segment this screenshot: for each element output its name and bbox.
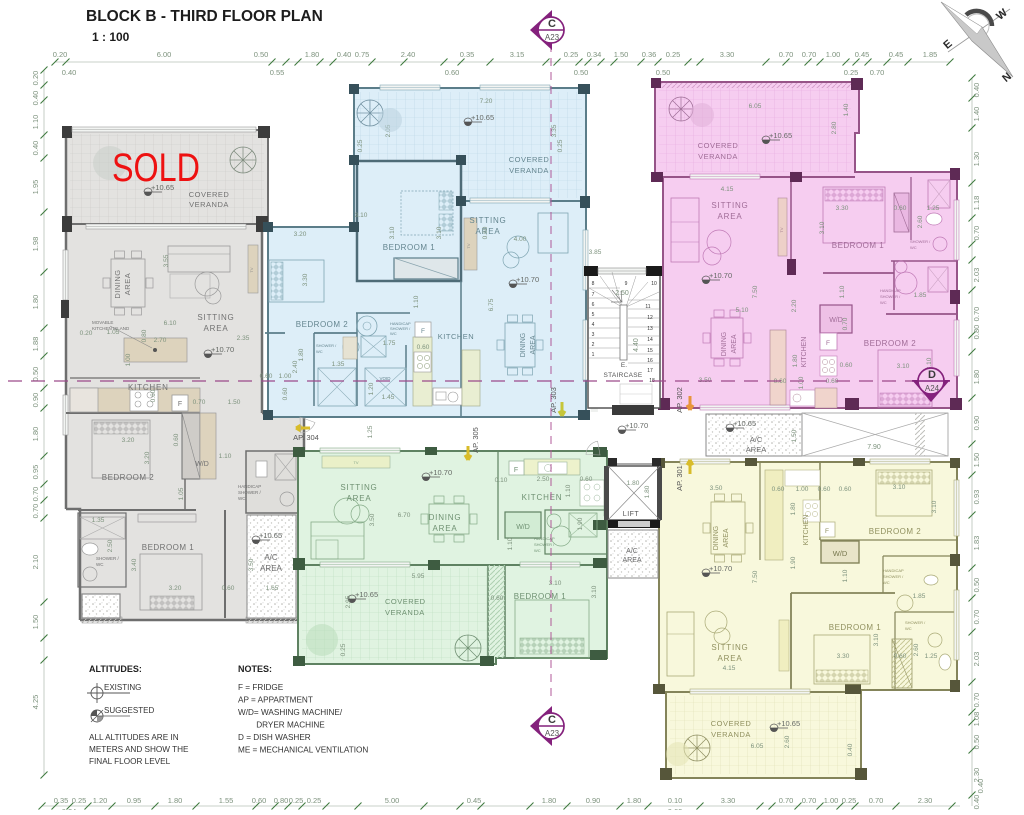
svg-text:0.70: 0.70 <box>802 50 817 59</box>
svg-text:6: 6 <box>592 302 595 308</box>
svg-text:0.40: 0.40 <box>337 50 352 59</box>
svg-text:2.10: 2.10 <box>31 555 40 570</box>
svg-text:W/D: W/D <box>195 461 209 468</box>
svg-text:1.00: 1.00 <box>826 50 841 59</box>
svg-text:SHOWER /: SHOWER / <box>316 343 337 348</box>
svg-text:8: 8 <box>592 281 595 287</box>
svg-text:F: F <box>826 340 830 347</box>
svg-text:1.85: 1.85 <box>923 50 938 59</box>
svg-text:KITCHEN: KITCHEN <box>438 332 474 341</box>
svg-text:AREA: AREA <box>718 212 743 221</box>
svg-text:SITTING: SITTING <box>711 643 748 652</box>
svg-text:E.: E. <box>621 362 627 369</box>
svg-text:0.60: 0.60 <box>894 205 907 212</box>
svg-text:SHOWER /: SHOWER / <box>96 556 120 561</box>
svg-text:0.25: 0.25 <box>307 796 322 805</box>
svg-text:3.30: 3.30 <box>721 796 736 805</box>
svg-text:3.40: 3.40 <box>131 558 138 571</box>
svg-text:5.10: 5.10 <box>736 307 749 314</box>
svg-text:1.10: 1.10 <box>31 115 40 130</box>
svg-text:1.05: 1.05 <box>178 487 185 500</box>
svg-text:A/C: A/C <box>264 553 278 562</box>
svg-text:3: 3 <box>592 332 595 338</box>
svg-text:0.25: 0.25 <box>842 796 857 805</box>
svg-text:W/D= WASHING MACHINE/: W/D= WASHING MACHINE/ <box>238 708 343 717</box>
svg-text:17: 17 <box>647 368 653 374</box>
svg-text:7: 7 <box>592 292 595 298</box>
svg-text:3.20: 3.20 <box>294 231 307 238</box>
svg-text:0.93: 0.93 <box>972 490 981 505</box>
svg-text:0.36: 0.36 <box>642 50 657 59</box>
svg-text:1.80: 1.80 <box>792 354 799 367</box>
svg-text:1.80: 1.80 <box>298 348 305 361</box>
svg-text:2.35: 2.35 <box>237 335 250 342</box>
svg-text:3.30: 3.30 <box>837 653 850 660</box>
svg-text:WC: WC <box>880 300 887 305</box>
svg-text:0.35: 0.35 <box>54 796 69 805</box>
svg-text:AP. 302: AP. 302 <box>675 387 684 413</box>
svg-text:1.88: 1.88 <box>31 337 40 352</box>
svg-text:AP = APPARTMENT: AP = APPARTMENT <box>238 696 313 705</box>
svg-text:0.10: 0.10 <box>495 477 508 484</box>
svg-text:KITCHEN: KITCHEN <box>522 493 563 502</box>
svg-text:SOLD: SOLD <box>112 146 200 190</box>
svg-text:0.34: 0.34 <box>587 50 602 59</box>
svg-text:1.85: 1.85 <box>914 292 927 299</box>
svg-text:1.25: 1.25 <box>925 653 938 660</box>
svg-text:DINING: DINING <box>713 526 720 551</box>
svg-text:4: 4 <box>592 322 595 328</box>
svg-text:F: F <box>825 528 829 535</box>
svg-text:0.60: 0.60 <box>894 653 907 660</box>
svg-text:1.80: 1.80 <box>31 427 40 442</box>
svg-text:0.90: 0.90 <box>586 796 601 805</box>
svg-text:SUGGESTED: SUGGESTED <box>104 706 154 715</box>
svg-text:SHOWER /: SHOWER / <box>910 239 931 244</box>
svg-text:0.25: 0.25 <box>557 139 564 152</box>
svg-text:0.25: 0.25 <box>340 643 347 656</box>
svg-text:COVERED: COVERED <box>385 597 426 606</box>
svg-text:3.20: 3.20 <box>144 451 151 464</box>
svg-text:COVERED: COVERED <box>698 141 739 150</box>
svg-text:0.40: 0.40 <box>976 779 985 794</box>
svg-text:6.00: 6.00 <box>157 50 172 59</box>
svg-text:A/C: A/C <box>626 548 638 555</box>
svg-text:2.50: 2.50 <box>537 476 550 483</box>
svg-text:A24: A24 <box>925 384 940 393</box>
svg-text:13: 13 <box>647 326 653 332</box>
svg-text:BLOCK B - THIRD FLOOR PLAN: BLOCK B - THIRD FLOOR PLAN <box>86 8 323 25</box>
svg-text:COVERED: COVERED <box>711 719 752 728</box>
svg-text:DINING: DINING <box>520 333 527 358</box>
svg-text:1.00: 1.00 <box>824 796 839 805</box>
svg-text:AREA: AREA <box>347 494 372 503</box>
svg-text:AREA: AREA <box>260 564 282 573</box>
svg-text:SHOWER /: SHOWER / <box>534 542 555 547</box>
svg-text:0.70: 0.70 <box>972 307 981 322</box>
svg-text:0.70: 0.70 <box>842 317 849 330</box>
svg-text:VERANDA: VERANDA <box>698 152 738 161</box>
svg-text:1 : 100: 1 : 100 <box>92 30 130 44</box>
svg-text:0.70: 0.70 <box>802 796 817 805</box>
svg-text:DINING: DINING <box>429 513 462 522</box>
svg-text:SITTING: SITTING <box>340 483 377 492</box>
svg-text:4.00: 4.00 <box>514 236 527 243</box>
svg-text:0.60: 0.60 <box>282 387 289 400</box>
svg-text:F = FRIDGE: F = FRIDGE <box>238 683 284 692</box>
svg-text:DRYER MACHINE: DRYER MACHINE <box>238 721 325 730</box>
svg-text:3.10: 3.10 <box>819 221 826 234</box>
svg-text:AREA: AREA <box>731 334 738 353</box>
svg-text:0.20: 0.20 <box>53 50 68 59</box>
svg-text:ALL ALTITUDES ARE IN: ALL ALTITUDES ARE IN <box>89 733 179 742</box>
svg-text:0.70: 0.70 <box>972 693 981 708</box>
svg-text:0.40: 0.40 <box>972 795 981 810</box>
svg-text:0.40: 0.40 <box>62 68 77 77</box>
svg-text:2.03: 2.03 <box>972 652 981 667</box>
svg-text:0.60: 0.60 <box>260 373 273 380</box>
svg-text:1.80: 1.80 <box>168 796 183 805</box>
svg-text:0.20: 0.20 <box>80 330 93 337</box>
svg-text:14: 14 <box>647 337 653 343</box>
svg-text:+10.70: +10.70 <box>625 421 648 430</box>
svg-text:0.60: 0.60 <box>222 585 235 592</box>
svg-text:0.45: 0.45 <box>467 796 482 805</box>
svg-text:+10.65: +10.65 <box>471 113 494 122</box>
svg-text:BEDROOM 2: BEDROOM 2 <box>869 527 922 536</box>
svg-text:1.10: 1.10 <box>413 295 420 308</box>
svg-text:0.40: 0.40 <box>31 141 40 156</box>
svg-text:LIFT: LIFT <box>623 511 640 518</box>
svg-text:AREA: AREA <box>530 335 537 354</box>
svg-text:0.60: 0.60 <box>491 595 504 602</box>
svg-text:15: 15 <box>647 348 653 354</box>
svg-text:1.25: 1.25 <box>367 425 374 438</box>
svg-text:0.70: 0.70 <box>31 504 40 519</box>
svg-text:BEDROOM 2: BEDROOM 2 <box>864 339 917 348</box>
svg-text:0.25: 0.25 <box>564 50 579 59</box>
svg-text:ME = MECHANICAL VENTILATION: ME = MECHANICAL VENTILATION <box>238 746 368 755</box>
svg-text:7.50: 7.50 <box>752 285 759 298</box>
svg-text:1.00: 1.00 <box>798 376 805 389</box>
svg-text:1.80: 1.80 <box>644 485 651 498</box>
svg-text:1.10: 1.10 <box>565 484 572 497</box>
svg-text:2.20: 2.20 <box>791 299 798 312</box>
svg-text:1.80: 1.80 <box>31 295 40 310</box>
svg-text:+10.65: +10.65 <box>733 419 756 428</box>
svg-text:WC: WC <box>883 580 890 585</box>
svg-text:1.18: 1.18 <box>972 196 981 211</box>
svg-text:ALTITUDES:: ALTITUDES: <box>89 664 142 674</box>
svg-text:0.50: 0.50 <box>31 367 40 382</box>
svg-text:1.50: 1.50 <box>31 615 40 630</box>
svg-text:1.95: 1.95 <box>31 180 40 195</box>
svg-text:2.30: 2.30 <box>918 796 933 805</box>
svg-text:1.98: 1.98 <box>31 237 40 252</box>
svg-text:AREA: AREA <box>123 273 132 295</box>
svg-text:2.40: 2.40 <box>292 360 299 373</box>
svg-text:1.00: 1.00 <box>279 373 292 380</box>
svg-text:1.00: 1.00 <box>796 486 809 493</box>
svg-text:2.50: 2.50 <box>615 290 629 297</box>
svg-text:AP. 304: AP. 304 <box>293 433 319 442</box>
svg-text:11: 11 <box>645 304 650 310</box>
svg-text:0.10: 0.10 <box>668 796 683 805</box>
svg-text:1.80: 1.80 <box>627 796 642 805</box>
svg-text:AREA: AREA <box>204 324 229 333</box>
svg-text:AREA: AREA <box>723 528 730 547</box>
svg-text:AP. 301: AP. 301 <box>675 465 684 491</box>
svg-text:1.30: 1.30 <box>972 152 981 167</box>
svg-text:DINING: DINING <box>721 332 728 357</box>
svg-text:1: 1 <box>592 352 595 358</box>
svg-text:1.90: 1.90 <box>577 517 584 530</box>
svg-text:3.15: 3.15 <box>510 50 525 59</box>
svg-text:1.10: 1.10 <box>839 285 846 298</box>
svg-text:6.75: 6.75 <box>488 298 495 311</box>
svg-text:7.90: 7.90 <box>867 444 881 451</box>
svg-text:KITCHEN: KITCHEN <box>801 337 808 368</box>
svg-text:C: C <box>548 714 556 726</box>
svg-text:4.25: 4.25 <box>31 695 40 710</box>
svg-text:WC: WC <box>96 562 104 567</box>
svg-text:KITCHEN: KITCHEN <box>803 515 810 546</box>
svg-text:W/D: W/D <box>516 524 530 531</box>
svg-text:SITTING: SITTING <box>197 313 234 322</box>
svg-text:TV: TV <box>249 267 254 272</box>
svg-text:3.20: 3.20 <box>169 585 182 592</box>
svg-text:0.20: 0.20 <box>31 71 40 86</box>
svg-text:3.10: 3.10 <box>873 633 880 646</box>
svg-text:0.55: 0.55 <box>270 68 285 77</box>
svg-text:SHOWER /: SHOWER / <box>880 294 901 299</box>
svg-text:0.95: 0.95 <box>31 465 40 480</box>
svg-text:0.70: 0.70 <box>870 68 885 77</box>
svg-text:16: 16 <box>647 358 653 364</box>
svg-text:+10.65: +10.65 <box>355 590 378 599</box>
svg-text:3.10: 3.10 <box>355 212 368 219</box>
svg-text:1.00: 1.00 <box>125 353 132 366</box>
svg-text:KITCHEN: KITCHEN <box>128 383 169 392</box>
svg-text:4.15: 4.15 <box>723 665 736 672</box>
svg-text:1.25: 1.25 <box>927 205 940 212</box>
svg-text:0.70: 0.70 <box>869 796 884 805</box>
svg-text:0.25: 0.25 <box>357 139 364 152</box>
svg-text:5.00: 5.00 <box>385 796 400 805</box>
svg-text:COVERED: COVERED <box>509 155 550 164</box>
svg-text:3.55: 3.55 <box>163 254 170 267</box>
svg-text:1.50: 1.50 <box>972 453 981 468</box>
svg-text:A23: A23 <box>545 729 560 738</box>
svg-text:0.25: 0.25 <box>289 796 304 805</box>
svg-text:1.75: 1.75 <box>383 340 396 347</box>
svg-text:6.70: 6.70 <box>398 512 411 519</box>
svg-text:3.10: 3.10 <box>931 500 938 513</box>
svg-text:1.40: 1.40 <box>972 107 981 122</box>
svg-text:BEDROOM 1: BEDROOM 1 <box>832 241 885 250</box>
svg-text:2.95: 2.95 <box>345 595 352 608</box>
svg-text:7.20: 7.20 <box>480 98 493 105</box>
svg-text:1.85: 1.85 <box>913 593 926 600</box>
svg-text:12: 12 <box>647 315 653 321</box>
svg-text:HANDICAP: HANDICAP <box>883 568 904 573</box>
svg-text:D: D <box>928 369 936 381</box>
svg-text:VERANDA: VERANDA <box>189 200 229 209</box>
svg-text:0.25: 0.25 <box>72 796 87 805</box>
svg-text:0.60: 0.60 <box>417 344 430 351</box>
svg-text:W/D: W/D <box>829 317 843 324</box>
svg-text:3.30: 3.30 <box>302 273 309 286</box>
svg-text:0.70: 0.70 <box>779 50 794 59</box>
svg-text:+10.70: +10.70 <box>709 271 732 280</box>
svg-text:D = DISH WASHER: D = DISH WASHER <box>238 733 311 742</box>
svg-text:1.50: 1.50 <box>614 50 629 59</box>
svg-text:5: 5 <box>592 312 595 318</box>
svg-text:COVERED: COVERED <box>189 190 230 199</box>
svg-text:AP. 305: AP. 305 <box>471 427 480 453</box>
svg-text:0.50: 0.50 <box>972 735 981 750</box>
svg-text:0.70: 0.70 <box>972 610 981 625</box>
svg-text:1.10: 1.10 <box>219 453 232 460</box>
svg-text:1.80: 1.80 <box>305 50 320 59</box>
svg-text:0.80: 0.80 <box>972 325 981 340</box>
svg-text:TV: TV <box>779 227 784 232</box>
svg-text:3.10: 3.10 <box>897 363 910 370</box>
svg-text:BEDROOM 2: BEDROOM 2 <box>102 473 155 482</box>
svg-text:AREA: AREA <box>433 524 458 533</box>
svg-text:SHOWER /: SHOWER / <box>238 490 262 495</box>
svg-text:+10.70: +10.70 <box>516 275 539 284</box>
svg-text:AP. 303: AP. 303 <box>549 387 558 413</box>
svg-text:3.50: 3.50 <box>710 485 723 492</box>
svg-text:1.08: 1.08 <box>972 712 981 727</box>
svg-text:WC: WC <box>534 548 541 553</box>
svg-text:0.90: 0.90 <box>31 393 40 408</box>
svg-text:1.80: 1.80 <box>790 502 797 515</box>
svg-text:1.40: 1.40 <box>843 103 850 116</box>
svg-text:1.10: 1.10 <box>507 537 514 550</box>
svg-text:C: C <box>548 18 556 30</box>
svg-text:TV: TV <box>466 243 471 248</box>
svg-text:1.50: 1.50 <box>791 429 798 442</box>
svg-text:0.40: 0.40 <box>972 83 981 98</box>
svg-text:A23: A23 <box>545 33 560 42</box>
svg-text:BEDROOM 1: BEDROOM 1 <box>514 592 567 601</box>
svg-text:STAIRCASE: STAIRCASE <box>603 372 642 379</box>
svg-text:1.35: 1.35 <box>92 517 105 524</box>
svg-text:0.60: 0.60 <box>818 486 831 493</box>
svg-text:SITTING: SITTING <box>469 216 506 225</box>
svg-text:VOID: VOID <box>379 376 391 381</box>
svg-text:BEDROOM 1: BEDROOM 1 <box>829 623 882 632</box>
svg-text:BEDROOM 1: BEDROOM 1 <box>383 243 436 252</box>
svg-text:1.55: 1.55 <box>219 796 234 805</box>
svg-text:0.60: 0.60 <box>839 486 852 493</box>
svg-text:AREA: AREA <box>622 557 641 564</box>
svg-text:MOVABLE: MOVABLE <box>92 320 113 325</box>
svg-text:0.75: 0.75 <box>355 50 370 59</box>
svg-text:0.25: 0.25 <box>666 50 681 59</box>
svg-text:0.40: 0.40 <box>31 91 40 106</box>
svg-text:0.60: 0.60 <box>445 68 460 77</box>
svg-text:0.50: 0.50 <box>574 68 589 77</box>
svg-text:+10.65: +10.65 <box>777 719 800 728</box>
svg-text:1.80: 1.80 <box>972 370 981 385</box>
svg-text:2.60: 2.60 <box>784 735 791 748</box>
svg-text:NOTES:: NOTES: <box>238 664 272 674</box>
svg-text:0.80: 0.80 <box>141 329 148 342</box>
svg-text:1.20: 1.20 <box>368 382 375 395</box>
svg-text:4.15: 4.15 <box>721 186 734 193</box>
svg-text:0.35: 0.35 <box>460 50 475 59</box>
svg-text:VERANDA: VERANDA <box>509 166 549 175</box>
svg-text:3.30: 3.30 <box>836 205 849 212</box>
svg-text:EXISTING: EXISTING <box>104 683 141 692</box>
svg-text:FINAL FLOOR LEVEL: FINAL FLOOR LEVEL <box>89 757 171 766</box>
svg-text:VERANDA: VERANDA <box>711 730 751 739</box>
svg-text:2.50: 2.50 <box>107 539 114 552</box>
svg-text:0.95: 0.95 <box>127 796 142 805</box>
svg-text:6.05: 6.05 <box>749 103 762 110</box>
svg-text:0.60: 0.60 <box>173 433 180 446</box>
svg-text:10: 10 <box>651 281 657 287</box>
svg-text:HANDICAP: HANDICAP <box>238 484 261 489</box>
svg-text:2.03: 2.03 <box>972 268 981 283</box>
svg-text:0.60: 0.60 <box>840 362 853 369</box>
svg-text:3.85: 3.85 <box>589 249 602 256</box>
svg-text:2.40: 2.40 <box>401 50 416 59</box>
svg-text:1.50: 1.50 <box>228 399 241 406</box>
svg-text:WC: WC <box>390 331 397 336</box>
svg-text:1.80: 1.80 <box>542 796 557 805</box>
svg-text:3.10: 3.10 <box>436 226 443 239</box>
svg-text:F: F <box>514 467 518 474</box>
svg-text:3.50: 3.50 <box>369 513 376 526</box>
svg-text:7.50: 7.50 <box>752 570 759 583</box>
svg-text:+10.70: +10.70 <box>709 564 732 573</box>
svg-text:AREA: AREA <box>746 445 766 454</box>
svg-text:1.20: 1.20 <box>93 796 108 805</box>
svg-text:0.50: 0.50 <box>656 68 671 77</box>
svg-text:5.95: 5.95 <box>412 573 425 580</box>
svg-text:0.70: 0.70 <box>972 226 981 241</box>
svg-text:9: 9 <box>625 281 628 287</box>
svg-text:0.25: 0.25 <box>844 68 859 77</box>
svg-text:AREA: AREA <box>718 654 743 663</box>
svg-text:SHOWER /: SHOWER / <box>905 620 926 625</box>
svg-text:0.60: 0.60 <box>772 486 785 493</box>
svg-text:3.10: 3.10 <box>893 484 906 491</box>
svg-text:0.45: 0.45 <box>889 50 904 59</box>
svg-text:3.10: 3.10 <box>389 226 396 239</box>
svg-text:4.40: 4.40 <box>633 338 640 352</box>
svg-text:W/D: W/D <box>833 549 848 558</box>
svg-text:0.60: 0.60 <box>252 796 267 805</box>
svg-text:1.35: 1.35 <box>332 361 345 368</box>
svg-text:0.60: 0.60 <box>482 226 489 239</box>
svg-text:0.70: 0.70 <box>31 487 40 502</box>
svg-text:3.50: 3.50 <box>248 558 255 571</box>
svg-text:BEDROOM 1: BEDROOM 1 <box>142 543 195 552</box>
svg-text:3.20: 3.20 <box>122 437 135 444</box>
svg-text:WC: WC <box>238 496 246 501</box>
svg-text:6.05: 6.05 <box>751 743 764 750</box>
svg-text:3.30: 3.30 <box>720 50 735 59</box>
svg-text:3.10: 3.10 <box>591 585 598 598</box>
svg-text:0.50: 0.50 <box>254 50 269 59</box>
svg-text:0.90: 0.90 <box>972 416 981 431</box>
svg-text:METERS AND SHOW THE: METERS AND SHOW THE <box>89 745 189 754</box>
